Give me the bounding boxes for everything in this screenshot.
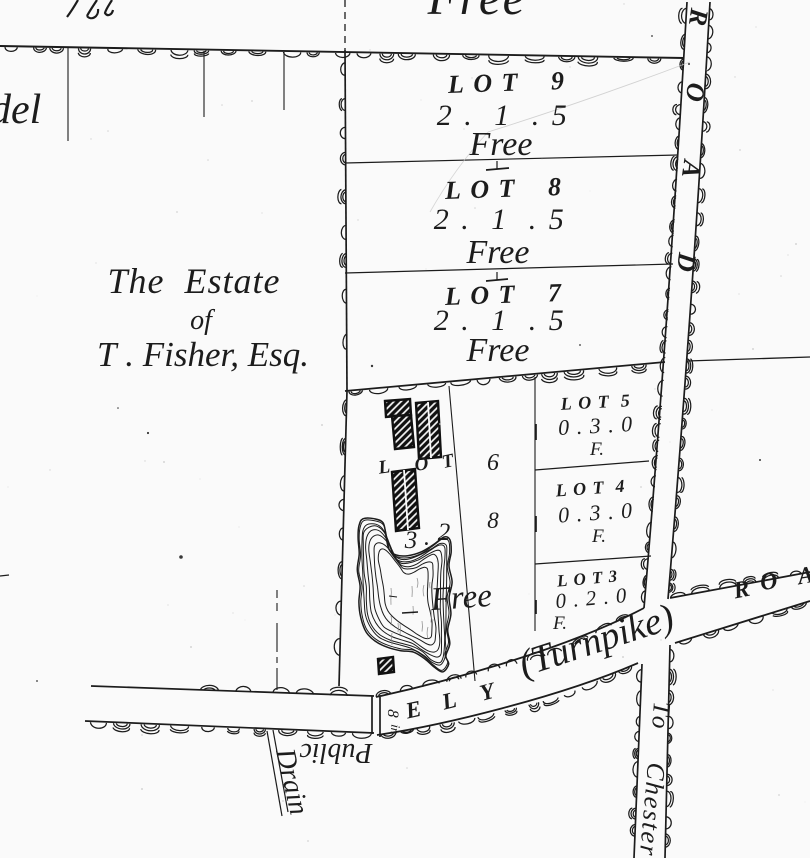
svg-text:0 . 3 . 0: 0 . 3 . 0	[557, 497, 634, 527]
svg-text:Free: Free	[466, 234, 530, 271]
svg-text:8: 8	[487, 508, 499, 533]
svg-text:0 . 3 . 0: 0 . 3 . 0	[558, 411, 634, 440]
svg-text:F.: F.	[589, 439, 604, 460]
svg-text:3: 3	[404, 527, 418, 554]
svg-text:F.: F.	[591, 526, 606, 547]
svg-text:The Estate: The Estate	[108, 261, 281, 301]
svg-text:2: 2	[438, 519, 451, 546]
svg-text:Free: Free	[429, 578, 493, 618]
svg-text:L O T 8: L O T 8	[443, 172, 562, 205]
svg-text:L O T 5: L O T 5	[559, 390, 631, 414]
svg-text:Free: Free	[466, 332, 530, 369]
svg-text:of: of	[190, 305, 215, 336]
svg-text:To: To	[646, 701, 675, 733]
svg-text:.: .	[424, 525, 430, 551]
svg-text:L O T 9: L O T 9	[446, 66, 565, 99]
svg-text:Free: Free	[469, 126, 533, 163]
svg-text:Free: Free	[427, 0, 527, 25]
svg-text:O: O	[414, 453, 430, 475]
svg-text:Public: Public	[299, 737, 374, 768]
svg-text:T . Fisher, Esq.: T . Fisher, Esq.	[97, 335, 309, 374]
svg-text:6: 6	[487, 450, 499, 476]
svg-text:in: in	[388, 724, 404, 735]
svg-text:2 . 1 . 5: 2 . 1 . 5	[434, 203, 567, 236]
svg-text:del: del	[0, 87, 41, 133]
svg-text:8: 8	[384, 709, 402, 718]
